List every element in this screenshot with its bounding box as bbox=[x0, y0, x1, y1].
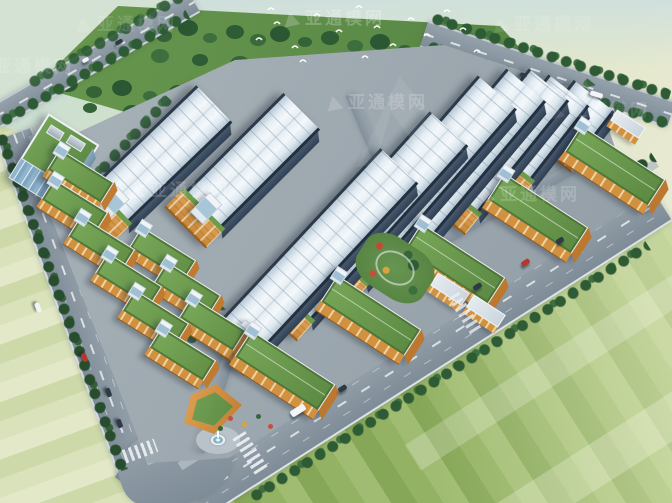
watermark: 亚通模网 bbox=[326, 94, 428, 111]
bird-icon bbox=[424, 34, 430, 36]
watermark-text: 亚通模网 bbox=[500, 186, 580, 203]
entrance-shrubs bbox=[228, 416, 233, 421]
bird-icon bbox=[362, 56, 368, 58]
watermark-logo-icon bbox=[491, 16, 510, 33]
watermark: 亚通模网 bbox=[128, 182, 230, 199]
watermark-text: 亚通模网 bbox=[305, 10, 385, 27]
watermark-text: 亚通模网 bbox=[570, 102, 650, 119]
bird-icon bbox=[460, 28, 466, 30]
watermark: 亚通模网 bbox=[548, 102, 650, 119]
watermark-logo-icon bbox=[282, 10, 301, 27]
bird-icon bbox=[390, 44, 396, 46]
watermark-text: 亚通模网 bbox=[0, 58, 74, 75]
aerial-rendering-industrial-park: 亚通模网 亚通模网 亚通模网 亚通模网 亚通模网 亚通模网 亚通模网 亚通模网 bbox=[0, 0, 672, 503]
watermark: 亚通模网 bbox=[492, 16, 594, 33]
bird-icon bbox=[336, 30, 342, 32]
watermark-text: 亚通模网 bbox=[514, 16, 594, 33]
watermark-logo-icon bbox=[127, 182, 146, 199]
watermark-logo-icon bbox=[325, 94, 344, 111]
watermark: 亚通模网 bbox=[478, 186, 580, 203]
watermark: 亚通模网 bbox=[75, 16, 177, 33]
watermark-logo-icon bbox=[74, 16, 93, 33]
bird-icon bbox=[256, 38, 262, 40]
watermark: 亚通模网 bbox=[0, 58, 74, 75]
watermark: 亚通模网 bbox=[283, 10, 385, 27]
bird-icon bbox=[300, 60, 306, 62]
bird-icon bbox=[292, 46, 298, 48]
garden-path bbox=[369, 243, 422, 293]
watermark-logo-icon bbox=[547, 102, 566, 119]
watermark-text: 亚通模网 bbox=[97, 16, 177, 33]
bird-icon bbox=[408, 18, 414, 20]
bird-icon bbox=[444, 10, 450, 12]
watermark-text: 亚通模网 bbox=[150, 182, 230, 199]
bird-icon bbox=[268, 8, 274, 10]
bird-icon bbox=[356, 6, 362, 8]
bird-icon bbox=[474, 50, 480, 52]
bird-icon bbox=[274, 22, 280, 24]
watermark-text: 亚通模网 bbox=[348, 94, 428, 111]
watermark-logo-icon bbox=[477, 186, 496, 203]
fountain-spray bbox=[217, 431, 219, 438]
